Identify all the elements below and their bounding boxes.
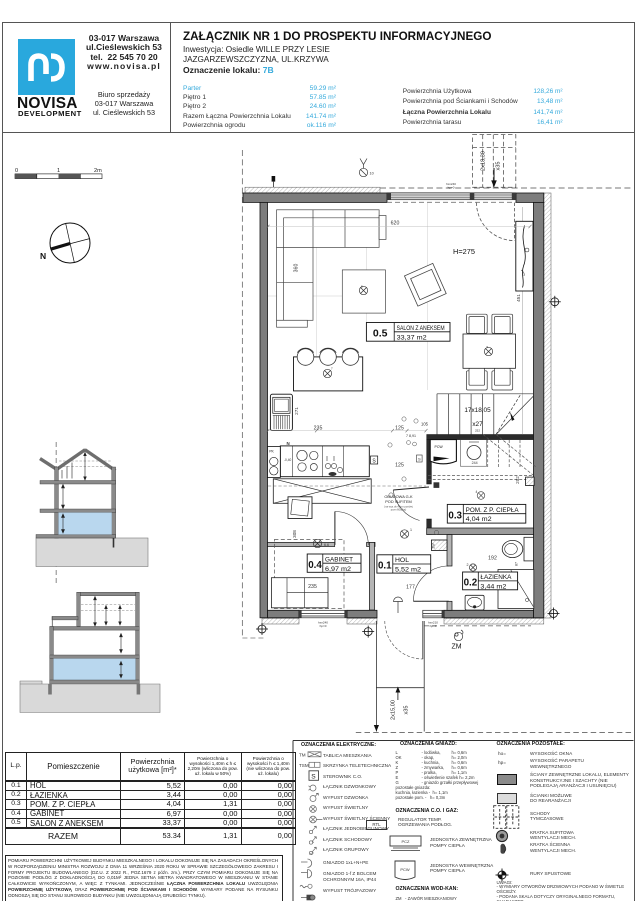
svg-text:x35: x35 [496,161,502,170]
svg-text:hp=0: hp=0 [320,624,327,628]
svg-text:TSM: TSM [299,763,309,768]
svg-text:hp=0: hp=0 [448,186,455,190]
svg-text:17x18,05: 17x18,05 [464,407,491,414]
svg-text:4,04 m2: 4,04 m2 [466,516,492,523]
svg-text:S: S [418,457,421,462]
svg-text:-0,40: -0,40 [284,458,291,462]
svg-text:252: 252 [475,429,480,433]
svg-text:POM. Z P. CIEPŁA: POM. Z P. CIEPŁA [466,507,520,514]
svg-text:2x15,00: 2x15,00 [391,700,397,720]
svg-text:2m: 2m [94,168,102,174]
svg-text:1: 1 [410,528,412,532]
svg-text:271: 271 [294,407,299,415]
svg-text:S: S [311,774,316,781]
svg-text:244: 244 [472,461,478,465]
svg-text:177: 177 [406,585,415,591]
svg-text:202: 202 [515,476,520,484]
svg-text:ZW: ZW [432,543,436,549]
svg-text:125: 125 [395,463,404,469]
svg-text:360: 360 [294,264,300,273]
svg-text:7 8,91: 7 8,91 [406,434,416,438]
svg-text:N: N [40,251,46,261]
svg-text:5,52 m2: 5,52 m2 [395,567,421,574]
svg-text:6.6: 6.6 [324,543,329,547]
svg-text:0.5: 0.5 [373,328,388,340]
svg-text:33,37 m2: 33,37 m2 [397,335,427,342]
svg-text:0.2: 0.2 [464,578,478,589]
svg-text:H=275: H=275 [453,247,475,256]
svg-text:ZM: ZM [452,644,462,651]
svg-text:10: 10 [370,172,374,176]
svg-text:2: 2 [467,563,469,567]
svg-text:pozn 60tyłka): pozn 60tyłka) [391,507,407,511]
svg-text:4: 4 [476,490,478,494]
svg-text:GABINET: GABINET [325,556,353,563]
svg-text:0.1: 0.1 [378,561,392,572]
svg-text:PK: PK [269,449,274,453]
svg-text:105: 105 [421,421,429,426]
svg-text:0.3: 0.3 [448,511,462,522]
svg-text:2x18,30: 2x18,30 [481,151,487,171]
svg-text:SALON Z ANEKSEM: SALON Z ANEKSEM [397,325,445,332]
svg-text:x27: x27 [472,421,483,428]
svg-text:620: 620 [391,221,400,227]
svg-text:HOL: HOL [395,557,409,564]
svg-text:235: 235 [308,584,317,590]
svg-text:1: 1 [57,168,60,174]
svg-text:451: 451 [516,294,521,302]
svg-text:0.4: 0.4 [308,560,322,571]
svg-text:ŁAZIENKA: ŁAZIENKA [480,574,512,581]
svg-text:PCZ: PCZ [402,839,411,844]
svg-text:0: 0 [15,168,18,174]
svg-text:TM: TM [299,753,306,758]
svg-text:3,44 m2: 3,44 m2 [480,583,506,590]
svg-text:192: 192 [488,556,497,562]
svg-text:POD SUFITEM: POD SUFITEM [385,499,412,504]
svg-text:PCW: PCW [435,445,444,449]
svg-text:N: N [287,441,290,446]
svg-text:PCW: PCW [400,867,410,872]
svg-text:125: 125 [395,426,404,432]
svg-text:hp=0: hp=0 [430,624,437,628]
svg-text:x35: x35 [404,705,410,714]
svg-text:87: 87 [515,562,519,566]
svg-text:308: 308 [292,530,297,538]
svg-text:235: 235 [314,425,323,431]
svg-text:6,97 m2: 6,97 m2 [325,566,351,573]
